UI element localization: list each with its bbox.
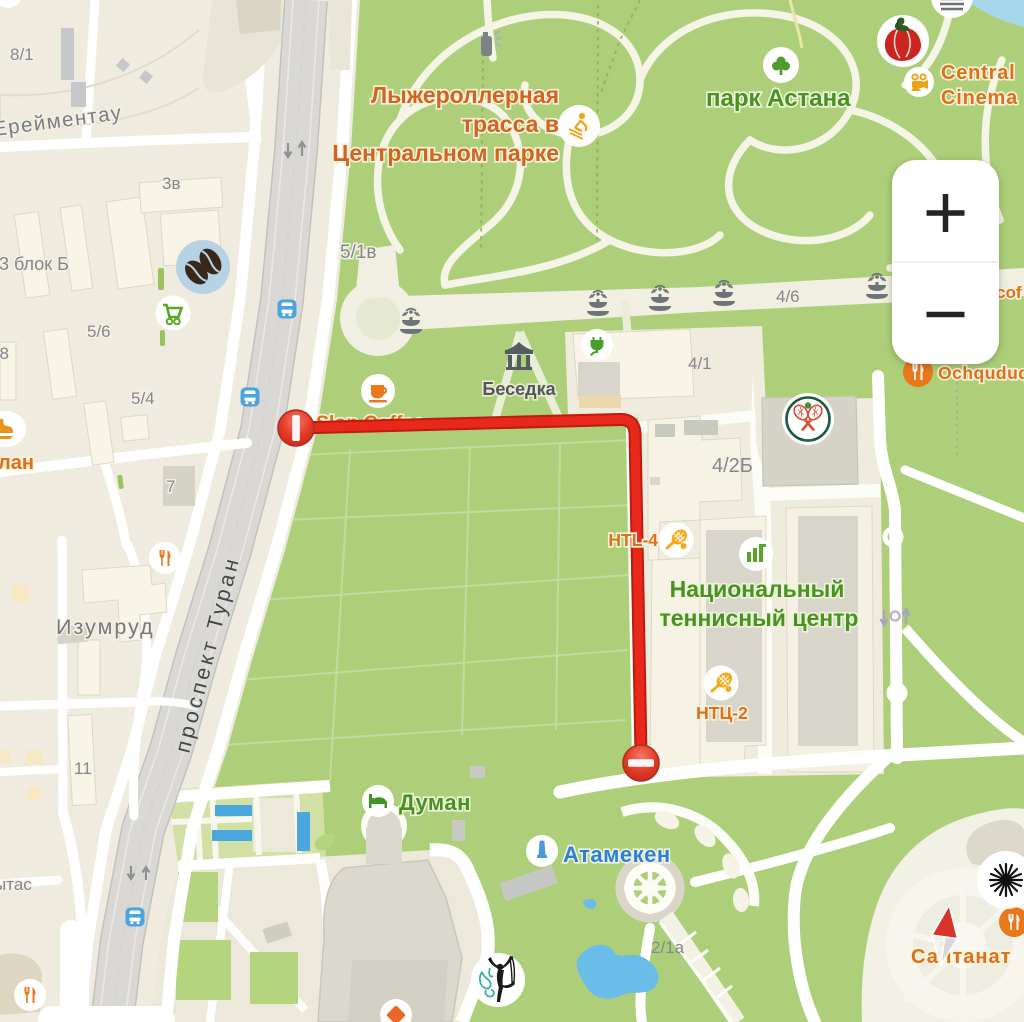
svg-text:4/2Б: 4/2Б — [712, 455, 753, 477]
svg-text:4/6: 4/6 — [776, 287, 800, 306]
svg-text:4/1: 4/1 — [688, 354, 712, 373]
svg-text:Центральном парке: Центральном парке — [332, 140, 559, 166]
svg-text:Атамекен: Атамекен — [563, 842, 671, 867]
svg-text:НТЦ-2: НТЦ-2 — [696, 703, 748, 723]
svg-text:теннисный центр: теннисный центр — [660, 605, 859, 631]
svg-text:5/6: 5/6 — [87, 322, 111, 341]
svg-text:ытас: ытас — [0, 875, 32, 894]
svg-text:Изумруд: Изумруд — [56, 615, 155, 639]
svg-text:73 блок Б: 73 блок Б — [0, 254, 69, 274]
svg-text:Cinema: Cinema — [941, 87, 1018, 109]
svg-text:HTL-4: HTL-4 — [608, 530, 658, 550]
svg-text:5/4: 5/4 — [131, 389, 155, 408]
svg-text:парк Астана: парк Астана — [706, 85, 851, 112]
svg-text:лан: лан — [0, 452, 34, 474]
svg-text:Думан: Думан — [399, 790, 471, 815]
svg-text:трасса в: трасса в — [462, 111, 559, 137]
svg-text:7: 7 — [166, 477, 175, 496]
svg-text:Беседка: Беседка — [482, 379, 556, 399]
svg-text:Салтанат: Салтанат — [911, 946, 1011, 968]
svg-text:3в: 3в — [162, 174, 181, 193]
svg-text:Ochquduq: Ochquduq — [938, 363, 1024, 383]
svg-text:78: 78 — [0, 344, 9, 363]
svg-text:Национальный: Национальный — [670, 576, 845, 602]
svg-text:11: 11 — [74, 759, 92, 778]
svg-text:Лыжероллерная: Лыжероллерная — [371, 82, 559, 108]
svg-text:Central: Central — [941, 62, 1016, 84]
svg-text:5/1в: 5/1в — [340, 242, 377, 263]
svg-text:2/1а: 2/1а — [651, 938, 685, 957]
svg-text:8/1: 8/1 — [10, 45, 34, 64]
svg-text:cof: cof — [996, 283, 1022, 302]
